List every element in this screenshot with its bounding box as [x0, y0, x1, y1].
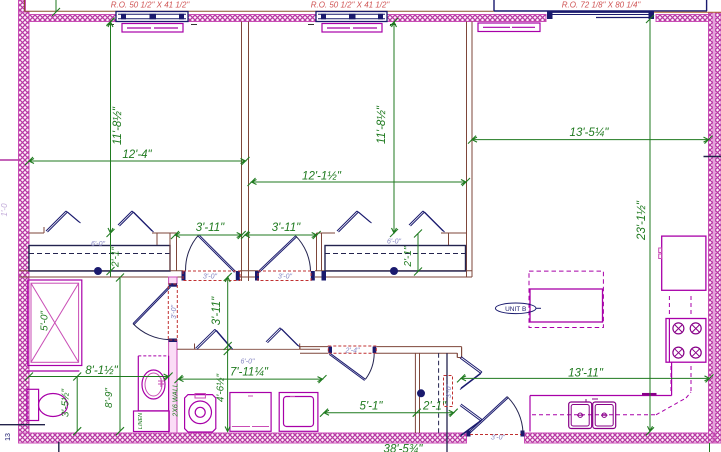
svg-text:13'-5¼": 13'-5¼": [570, 127, 610, 139]
svg-text:2'-1": 2'-1": [403, 246, 414, 267]
svg-text:2'-4": 2'-4": [345, 347, 360, 354]
svg-text:R.O. 50 1/2" X 41 1/2": R.O. 50 1/2" X 41 1/2": [311, 1, 391, 10]
svg-text:8'-9": 8'-9": [104, 388, 115, 408]
svg-text:3'-11": 3'-11": [196, 222, 225, 234]
svg-text:12'-1½": 12'-1½": [302, 170, 342, 182]
svg-text:3'-11": 3'-11": [211, 296, 223, 325]
svg-text:11'-8½": 11'-8½": [112, 106, 124, 145]
svg-text:3'-0": 3'-0": [491, 435, 505, 442]
svg-text:6'-0": 6'-0": [387, 239, 401, 246]
svg-text:R.O. 50 1/2" X 41 1/2": R.O. 50 1/2" X 41 1/2": [111, 1, 191, 10]
svg-text:6'-0": 6'-0": [241, 359, 255, 366]
svg-text:11'-8½": 11'-8½": [376, 105, 388, 144]
svg-text:3'-0": 3'-0": [203, 274, 217, 281]
svg-text:2'-1": 2'-1": [422, 401, 447, 413]
svg-text:5'-0": 5'-0": [40, 311, 51, 331]
svg-text:2X6 WALL: 2X6 WALL: [173, 383, 180, 417]
svg-text:13'-11": 13'-11": [568, 368, 604, 380]
svg-text:2'-1": 2'-1": [111, 247, 122, 268]
svg-text:4'-6½": 4'-6½": [216, 373, 227, 402]
svg-text:R.O. 72 1/8" X 80 1/4": R.O. 72 1/8" X 80 1/4": [562, 1, 642, 10]
svg-text:8'-1½": 8'-1½": [85, 365, 118, 377]
svg-text:7'-11¼": 7'-11¼": [230, 367, 269, 379]
svg-text:3'-0": 3'-0": [278, 274, 292, 281]
svg-text:3'-5½": 3'-5½": [61, 388, 72, 417]
svg-text:3'-0": 3'-0": [171, 305, 178, 319]
svg-text:13: 13: [5, 433, 12, 441]
svg-text:3'-11": 3'-11": [272, 222, 301, 234]
svg-text:23'-1½": 23'-1½": [636, 200, 648, 241]
svg-text:5'-1": 5'-1": [360, 401, 384, 413]
svg-text:3'-0": 3'-0": [446, 384, 453, 398]
svg-text:LINEN: LINEN: [138, 413, 144, 429]
svg-text:UNIT B: UNIT B: [505, 306, 526, 313]
svg-text:38'-5¾": 38'-5¾": [384, 444, 424, 452]
svg-text:1'-0: 1'-0: [0, 203, 9, 217]
svg-text:6'-0": 6'-0": [91, 241, 105, 248]
svg-text:12'-4": 12'-4": [122, 149, 152, 161]
